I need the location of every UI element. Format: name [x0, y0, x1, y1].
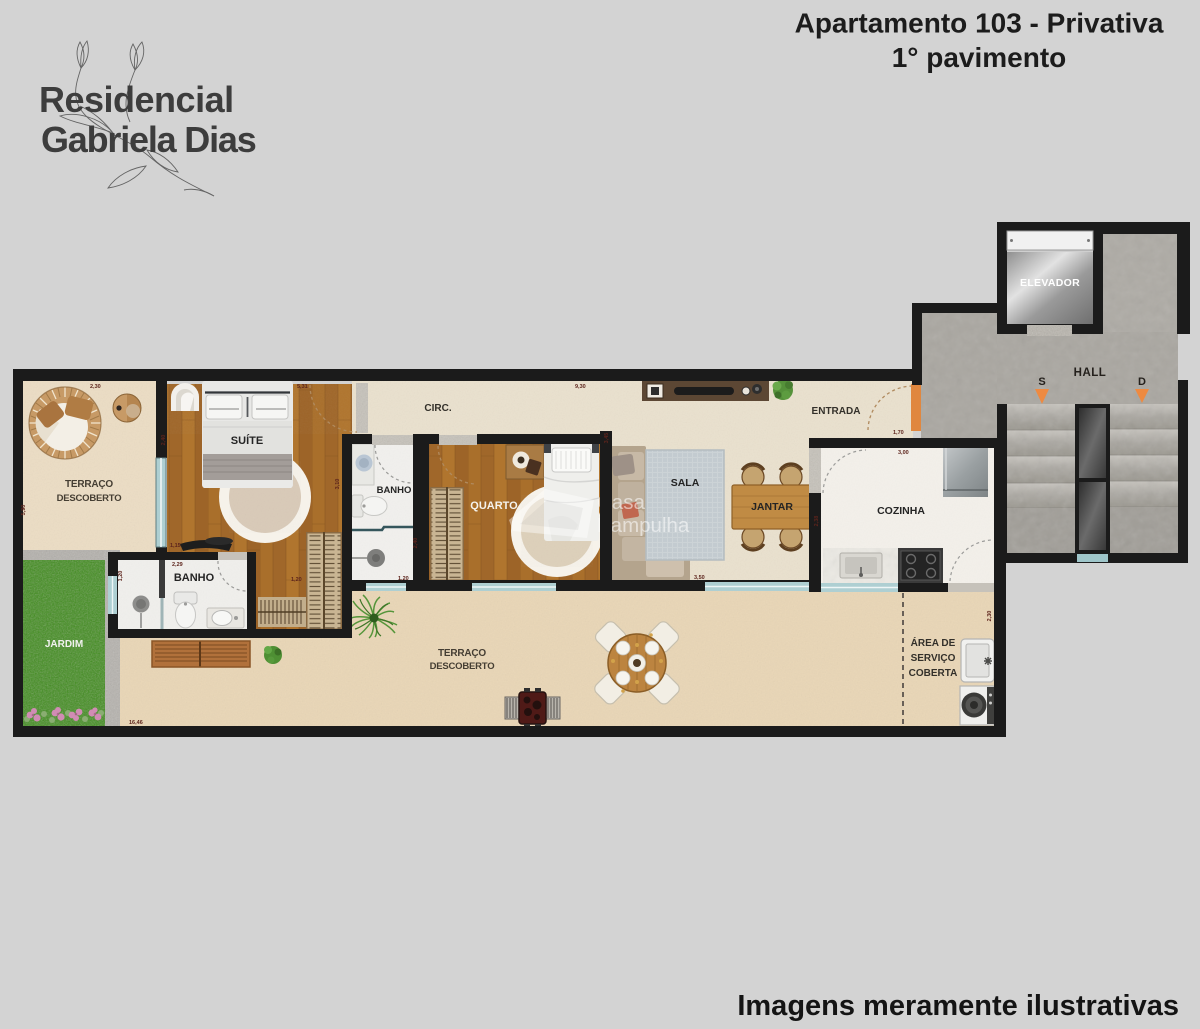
svg-text:ÁREA DE: ÁREA DE	[911, 636, 956, 649]
svg-text:5,90: 5,90	[21, 505, 27, 516]
svg-text:2,30: 2,30	[987, 611, 993, 622]
svg-text:3,45: 3,45	[604, 433, 610, 444]
svg-text:HALL: HALL	[1074, 367, 1107, 379]
svg-text:S: S	[1038, 376, 1045, 388]
svg-text:3,00: 3,00	[898, 450, 909, 456]
svg-text:ENTRADA: ENTRADA	[812, 406, 861, 417]
svg-text:1,70: 1,70	[893, 430, 904, 436]
svg-text:Gabriela Dias: Gabriela Dias	[41, 119, 256, 160]
svg-text:16,46: 16,46	[129, 720, 143, 726]
svg-text:3,10: 3,10	[335, 479, 341, 490]
svg-text:SERVIÇO: SERVIÇO	[911, 653, 956, 664]
svg-text:BANHO: BANHO	[377, 485, 412, 496]
svg-text:3,50: 3,50	[694, 575, 705, 581]
svg-text:DESCOBERTO: DESCOBERTO	[430, 661, 495, 672]
svg-text:1,15: 1,15	[170, 543, 181, 549]
svg-text:5,31: 5,31	[297, 384, 308, 390]
svg-text:2,40: 2,40	[161, 435, 167, 446]
svg-text:COBERTA: COBERTA	[909, 668, 958, 679]
svg-text:TERRAÇO: TERRAÇO	[65, 479, 113, 490]
svg-text:DESCOBERTO: DESCOBERTO	[57, 493, 122, 504]
svg-text:QUARTO: QUARTO	[470, 500, 518, 512]
svg-text:1,20: 1,20	[291, 577, 302, 583]
svg-text:ELEVADOR: ELEVADOR	[1020, 277, 1080, 289]
svg-text:9,30: 9,30	[575, 384, 586, 390]
svg-text:JARDIM: JARDIM	[45, 639, 83, 650]
svg-text:1,20: 1,20	[118, 571, 124, 582]
svg-text:CIRC.: CIRC.	[424, 403, 451, 414]
svg-text:D: D	[1138, 376, 1146, 388]
svg-text:SUÍTE: SUÍTE	[231, 434, 263, 447]
svg-text:SALA: SALA	[671, 477, 700, 489]
svg-text:JANTAR: JANTAR	[751, 501, 793, 513]
svg-text:Imagens meramente ilustrativas: Imagens meramente ilustrativas	[737, 990, 1179, 1022]
svg-text:BANHO: BANHO	[174, 572, 215, 584]
svg-text:1,20: 1,20	[398, 576, 409, 582]
svg-text:2,30: 2,30	[90, 384, 101, 390]
svg-text:COZINHA: COZINHA	[877, 505, 925, 517]
svg-text:TERRAÇO: TERRAÇO	[438, 648, 486, 659]
svg-text:2,29: 2,29	[172, 562, 183, 568]
svg-text:Apartamento 103 - Privativa: Apartamento 103 - Privativa	[795, 8, 1164, 39]
svg-text:1° pavimento: 1° pavimento	[892, 42, 1067, 73]
svg-text:2,38: 2,38	[814, 516, 820, 527]
svg-text:2,40: 2,40	[413, 538, 419, 549]
svg-text:Residencial: Residencial	[39, 79, 234, 120]
